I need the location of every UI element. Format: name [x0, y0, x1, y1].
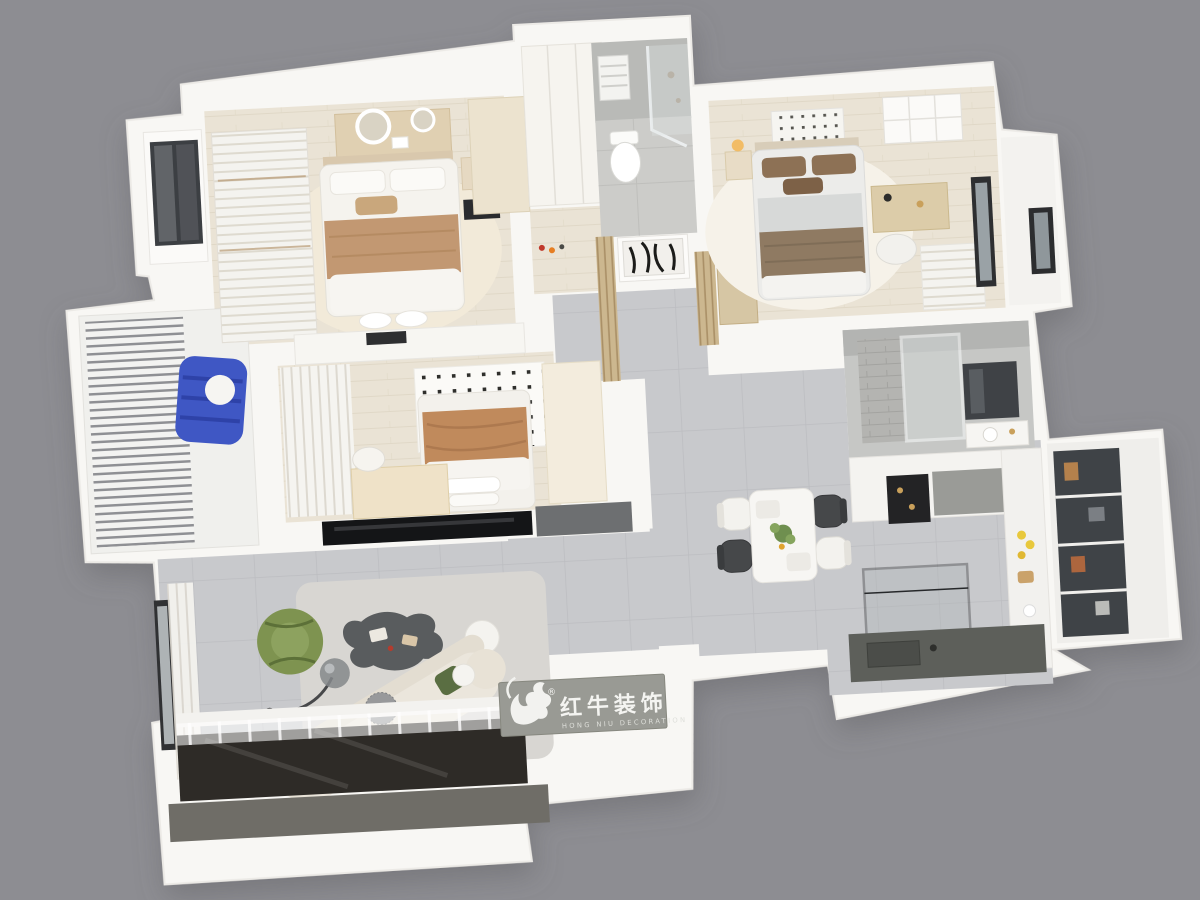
bed-1: [319, 150, 466, 331]
placemat: [755, 500, 780, 519]
floorplan-svg: ® 红牛装饰 HONG NIU DECORATION: [0, 0, 1200, 900]
shower-tile-wall: [857, 337, 906, 443]
wall-shelf: [882, 94, 962, 144]
dark-countertop: [848, 624, 1046, 682]
bed-3: [751, 137, 871, 301]
glass-partition: [863, 564, 971, 639]
bathroom-2: [843, 320, 1036, 460]
bath2-vanity: [966, 421, 1029, 448]
bay-room: [1028, 207, 1055, 274]
blue-lounge-chair: [174, 355, 248, 446]
dining-table: [749, 488, 818, 583]
wardrobe-east: [542, 361, 607, 504]
toilet: [609, 131, 642, 184]
dining-chair-sw: [716, 539, 753, 573]
sink: [867, 641, 920, 668]
glass-closet-niche: [143, 129, 208, 264]
floorplan-render: ® 红牛装饰 HONG NIU DECORATION: [0, 0, 1200, 900]
dining-chair-se: [815, 536, 852, 570]
bed2-blanket: [422, 407, 529, 464]
pantry-glass-cabinets: [1053, 448, 1129, 637]
glass-shower: [647, 44, 692, 148]
gray-credenza: [535, 501, 632, 536]
foot-pillows: [444, 476, 501, 494]
towel-radiator: [598, 55, 630, 101]
glass-shower-2: [901, 334, 964, 441]
slatted-wardrobe: [211, 128, 317, 343]
dining-chair-ne: [811, 494, 848, 528]
bathroom-1: [591, 38, 697, 238]
louver-wardrobe: [280, 364, 358, 517]
dresser-column: [468, 97, 530, 215]
accent-pillow: [355, 195, 398, 215]
bed3-blanket: [759, 227, 865, 278]
display-shelf: [886, 474, 930, 524]
registered-mark: ®: [547, 688, 557, 698]
dining-chair-nw: [716, 497, 753, 531]
brown-pillow: [761, 156, 806, 178]
artwork-console: [617, 234, 689, 282]
hall-floor-upper: [697, 368, 850, 476]
